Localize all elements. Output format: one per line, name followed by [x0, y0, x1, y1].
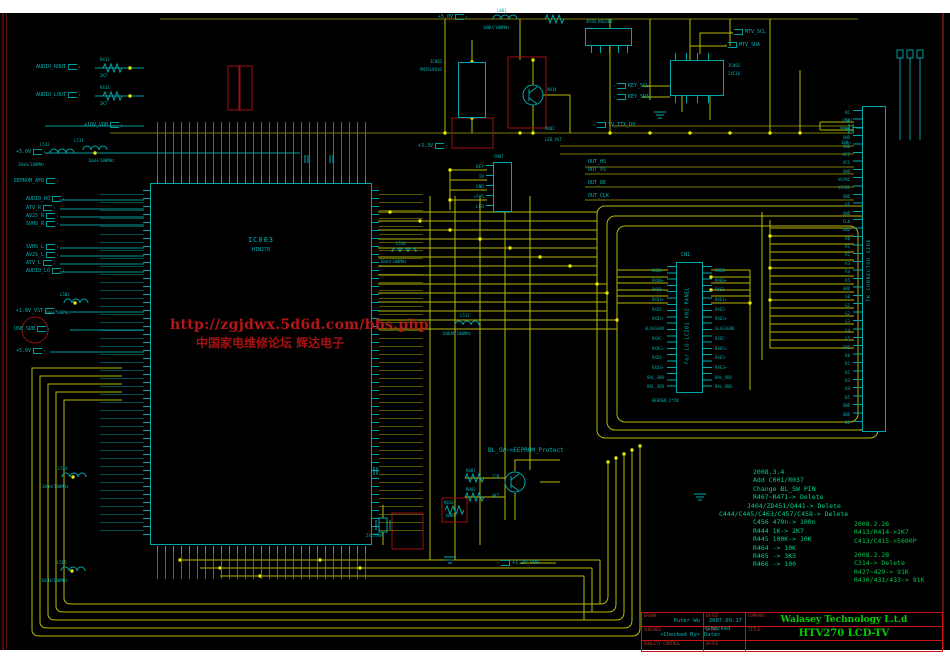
- net-label-out-hs: OUT_HS: [588, 160, 606, 165]
- lvds-pins-left: [667, 266, 676, 392]
- pin-label: RXO2+: [628, 315, 664, 325]
- net-label: +3.3V: [418, 144, 433, 149]
- pin-label: GND: [824, 344, 850, 352]
- revision-line: 2008.3.4: [753, 468, 848, 476]
- company-name: Walasey Technology L.t.d: [746, 613, 942, 626]
- pin-label: VCC: [824, 151, 850, 159]
- net-flag-eeprom-afd: EEPROM_AFD: [14, 178, 58, 184]
- net-flag-1v2-vdd: +1.2V_VDD: [498, 560, 539, 566]
- holder-label: 4PIN_HOLDER: [586, 20, 613, 24]
- pin-label: RXO3+: [628, 364, 664, 374]
- net-label: ATV_L: [26, 261, 41, 266]
- resistor-ref: R007: [466, 469, 476, 473]
- flag-icon: [46, 213, 58, 219]
- title-block-qc-cell: QUALITY CONTROL: [642, 641, 704, 651]
- transistor-part: 9014: [547, 88, 557, 92]
- inductor-value: 10uH/100MHz: [44, 311, 71, 315]
- net-flag-atv-l: ATV_L: [26, 260, 55, 266]
- inductor-ref: L001: [497, 9, 507, 13]
- pin-label: +5VS: [462, 194, 484, 204]
- main-ic-pins-left: [143, 190, 150, 538]
- flag-icon: [46, 221, 58, 227]
- pin-label: RXOC+: [628, 345, 664, 355]
- pin-label: RXE0-: [715, 267, 759, 277]
- pin-label: GND: [824, 193, 850, 201]
- pin-label: RXE2-: [715, 306, 759, 316]
- pin-label: RXE1+: [715, 296, 759, 306]
- holder-connector-body: [585, 28, 632, 46]
- keypad-header-ref: CN07: [494, 155, 504, 159]
- net-label-r002: R002: [545, 127, 555, 131]
- flag-icon: [46, 178, 58, 184]
- resistor-value: 100R: [445, 514, 455, 518]
- cell-label: CHECKED: [644, 628, 661, 632]
- pin-label: R2: [824, 251, 850, 259]
- flag-icon: [614, 83, 626, 89]
- pin-label: RXO0-: [628, 267, 664, 277]
- inductor-ref: L516: [58, 467, 68, 471]
- resistor-ref: R414: [100, 86, 110, 90]
- watermark-forum: 中国家电维修论坛 辉达电子: [196, 334, 344, 351]
- wires-left-of-ic: [100, 194, 144, 538]
- resistor-ref: R413: [100, 58, 110, 62]
- net-flag-svhs-l: SVHS_L: [26, 244, 58, 250]
- lvds-connector-ref: CN1: [681, 253, 690, 258]
- net-label: KEY_SCL: [628, 84, 649, 89]
- flag-icon: [33, 348, 45, 354]
- net-label-out-clk: OUT_CLK: [588, 194, 609, 199]
- flag-icon: [33, 149, 45, 155]
- lvds-pin-labels-right: RXE0-RXE0+RXE1-RXE1+RXE2-RXE2+GLASSGNDRX…: [715, 267, 759, 393]
- eeprom-part: 24C16: [728, 72, 740, 76]
- title-block-dated-cell: DATED 2007.09.17: [704, 613, 746, 627]
- pin-label: BAL_GND: [628, 374, 664, 384]
- net-flag-atv-r: ATV_R: [26, 205, 55, 211]
- net-label: ATV_R: [26, 206, 41, 211]
- pin-label: RXEC-: [715, 335, 759, 345]
- title-block-empty-cell: [746, 641, 942, 651]
- revision-line: C413/C415->5600P: [854, 537, 917, 545]
- pin-label: G5: [824, 335, 850, 343]
- inductor-value: 10uH/100MHz: [380, 260, 407, 264]
- pin-label: RXO1-: [628, 286, 664, 296]
- title-block-checked-date-cell: DATED <Checked Date>: [704, 627, 746, 641]
- lvds-connector-footprint: HEADER_2*20: [652, 399, 679, 403]
- revision-line: 2008.2.26: [854, 520, 917, 528]
- main-ic-pins-top: [157, 176, 369, 183]
- ttl-pin-labels: NCNCNCGNDGNDVCCVCCGNDHSYNCVSYNCGNDDEGNDC…: [824, 109, 850, 427]
- net-flag-audio-rout: AUDIO_ROUT: [36, 64, 80, 70]
- checked-by-value: <Checked By>: [660, 633, 700, 639]
- inductor-ref: L510: [396, 242, 406, 246]
- net-flag-5v-top: +5.0V: [438, 14, 467, 20]
- flag-icon: [68, 64, 80, 70]
- net-label: KEY_SDA: [628, 95, 649, 100]
- title-block-qc-date-cell: DATED: [704, 641, 746, 651]
- flag-icon: [52, 196, 64, 202]
- net-label-led-vst: LED_VST: [545, 138, 562, 142]
- pin-label: GLASSGND: [628, 325, 664, 335]
- flag-icon: [110, 122, 122, 128]
- net-label: AV2S_R: [26, 214, 44, 219]
- resistor-value: 2K7: [100, 74, 107, 78]
- pin-label: BAL_VDD: [715, 374, 759, 384]
- net-label: +1.8V_VST: [16, 309, 43, 314]
- revision-line: Add C001/R037: [753, 476, 848, 484]
- net-flag-key-scl: KEY_SCL: [614, 83, 649, 89]
- pin-label: RXO0+: [628, 277, 664, 287]
- net-label: AUDIO_LO: [26, 269, 50, 274]
- title-block-company-cell: COMPANY: Walasey Technology L.t.d: [746, 613, 942, 627]
- revision-line: 2008.2.28: [854, 551, 924, 559]
- drawn-by-value: Puter Wu: [674, 619, 701, 625]
- pin-label: DE: [824, 201, 850, 209]
- pin-label: RXE1-: [715, 286, 759, 296]
- revision-notes-2008-02-26: 2008.2.26R413/R414->2K7C413/C415->5600P: [854, 520, 917, 545]
- pin-label: GND: [824, 402, 850, 410]
- pin-label: G4: [824, 327, 850, 335]
- revision-line: R430/431/433-> 91K: [854, 576, 924, 584]
- title-block-title-cell: TITLE HTV270 LCD-TV: [746, 627, 942, 641]
- revision-line: R427~429-> 91K: [854, 568, 924, 576]
- net-label: MTV_SCL: [745, 30, 766, 35]
- schematic-page: IC003 HIN270 CN1 For LG LC201 V02 PANEL …: [0, 0, 950, 670]
- net-label: SVHS_R: [26, 222, 44, 227]
- net-flag-5v: +5.0V: [16, 149, 45, 155]
- pin-label: RXEC+: [715, 345, 759, 355]
- flag-icon: [43, 260, 55, 266]
- pin-label: R3: [824, 260, 850, 268]
- main-ic-part: HIN270: [150, 248, 372, 253]
- net-flag-usb-sdb: USB_SDB: [14, 326, 49, 332]
- net-flag-av2s-l: AV2S_L: [26, 252, 58, 258]
- pin-label: R5: [824, 277, 850, 285]
- flash-ic-body: [458, 62, 486, 118]
- schematic-title: HTV270 LCD-TV: [746, 627, 942, 640]
- resistor-ref: R002: [466, 488, 476, 492]
- net-label: +5.0V: [16, 349, 31, 354]
- net-flag-key-sda: KEY_SDA: [614, 94, 649, 100]
- pin-label: RXE3-: [715, 354, 759, 364]
- flag-icon: [498, 560, 510, 566]
- revision-notes-2008-02-28: 2008.2.28C314-> DeleteR427~429-> 91KR430…: [854, 551, 924, 585]
- pin-label: B2: [824, 369, 850, 377]
- title-block-checked-cell: CHECKED <Checked By>: [642, 627, 704, 641]
- main-ic-pins-right: [372, 190, 379, 538]
- net-flag-10v-vdb: +10V_VDB: [84, 122, 122, 128]
- net-label: AV2S_L: [26, 253, 44, 258]
- pin-label: B3: [824, 377, 850, 385]
- net-flag-audio-lout: AUDIO_LOUT: [36, 92, 80, 98]
- net-flag-mtv-scl: MTV_SCL: [731, 29, 766, 35]
- main-ic-ref: IC003: [150, 237, 372, 244]
- net-flag-ttx: TV_TTX_DV: [594, 122, 635, 128]
- flag-icon: [455, 14, 467, 20]
- watermark-url: http://zgjdwx.5d6d.com/bbs.php: [170, 317, 429, 333]
- pin-label: GND: [462, 184, 484, 194]
- net-flag-3v3: +3.3V: [418, 143, 447, 149]
- flag-icon: [37, 326, 49, 332]
- pin-label: NC: [824, 126, 850, 134]
- resistor-value: 4K7: [492, 494, 499, 498]
- pin-label: B1: [824, 360, 850, 368]
- net-label: +1.2V_VDD: [512, 561, 539, 566]
- cell-label: DRAWN: [644, 614, 656, 618]
- title-block: DRAWN Puter Wu DATED 2007.09.17 COMPANY:…: [641, 612, 943, 652]
- pin-label: NC: [824, 109, 850, 117]
- net-label: USB_SDB: [14, 327, 35, 332]
- pin-label: LED: [462, 204, 484, 214]
- pin-label: B4: [824, 385, 850, 393]
- eeprom-pins-top: [675, 53, 719, 60]
- inductor-value: 10uH/100MHz: [88, 159, 115, 163]
- net-label: TV_TTX_DV: [608, 123, 635, 128]
- revision-line: R467~R471-> Delete: [753, 493, 848, 501]
- inductor-value: 10uH/100MHz: [41, 579, 68, 583]
- pin-label: RXE2+: [715, 315, 759, 325]
- flag-icon: [731, 29, 743, 35]
- net-flag-5v-2: +5.0V: [16, 348, 45, 354]
- inductor-value: 100UH/100MHz: [442, 332, 471, 336]
- net-label: SVHS_L: [26, 245, 44, 250]
- revision-line: R464 -> 10K: [753, 544, 848, 552]
- net-label: AUDIO_ROUT: [36, 65, 66, 70]
- revision-line: Change BL_SW PIN: [753, 485, 848, 493]
- wire-drops-below-ic: [157, 553, 369, 579]
- keypad-pin-labels: KEYIRGND+5VSLED: [462, 164, 484, 214]
- pin-label: G0: [824, 293, 850, 301]
- pin-label: G3: [824, 318, 850, 326]
- lvds-pins-right: [703, 266, 712, 392]
- net-flag-audio-ro: AUDIO_RO: [26, 196, 64, 202]
- checked-date-value: <Checked Date>: [704, 627, 742, 638]
- flag-icon: [725, 42, 737, 48]
- pin-label: BAL_GND: [715, 383, 759, 393]
- pin-label: G2: [824, 310, 850, 318]
- net-label: AUDIO_LOUT: [36, 93, 66, 98]
- pin-label: VSYNC: [824, 184, 850, 192]
- pin-label: GND: [824, 411, 850, 419]
- revision-notes-main: 2008.3.4Add C001/R037Change BL_SW PINR46…: [719, 468, 848, 569]
- ttl-pins: [853, 110, 862, 428]
- revision-line: C314-> Delete: [854, 559, 924, 567]
- flag-icon: [52, 268, 64, 274]
- wire-drops-above-ic: [157, 122, 369, 176]
- pin-label: BAL_VDD: [628, 383, 664, 393]
- net-flag-svhs-r: SVHS_R: [26, 221, 58, 227]
- cap-value: 100n: [841, 141, 851, 145]
- eeprom-ref: IC001: [728, 64, 740, 68]
- inductor-ref: L513: [460, 314, 470, 318]
- inductor-value: 10uH/100MHz: [18, 163, 45, 167]
- ttl-connector-label: TK_CONNECTOR_SIDE: [868, 210, 876, 330]
- cell-label: DATED: [706, 642, 718, 646]
- pin-label: HSYNC: [824, 176, 850, 184]
- inductor-ref: L502: [60, 293, 70, 297]
- keypad-pins: [486, 165, 493, 211]
- net-flag-audio-lo: AUDIO_LO: [26, 268, 64, 274]
- net-label: +5.0V: [438, 15, 453, 20]
- eeprom-pins-bottom: [675, 96, 719, 103]
- resistor-value: 22R: [492, 475, 499, 479]
- flag-icon: [43, 205, 55, 211]
- net-label: +5.0V: [16, 150, 31, 155]
- pin-label: GND: [824, 168, 850, 176]
- flag-icon: [46, 244, 58, 250]
- net-label: +10V_VDB: [84, 123, 108, 128]
- crystal-value: 24.576M: [366, 534, 383, 538]
- net-label-out-de: OUT_DE: [588, 181, 606, 186]
- drawn-date-value: 2007.09.17: [709, 619, 742, 625]
- inductor-ref: L512: [40, 143, 50, 147]
- net-flag-mtv-sda: MTV_SDA: [725, 42, 760, 48]
- revision-line: R444 1K-> 2K7: [753, 527, 848, 535]
- resistor-value: 2K7: [100, 102, 107, 106]
- pin-label: GND: [824, 226, 850, 234]
- keypad-header-body: [493, 162, 512, 212]
- pin-label: KEY: [462, 164, 484, 174]
- revision-line: R466 -> 100: [753, 560, 848, 568]
- pin-label: CLK: [824, 218, 850, 226]
- holder-pins: [591, 46, 629, 53]
- revision-line: C444/C445/C463/C457/C458-> Delete: [719, 510, 848, 518]
- pin-label: R0: [824, 235, 850, 243]
- pin-label: GND: [824, 210, 850, 218]
- flag-icon: [46, 252, 58, 258]
- title-block-drawn-cell: DRAWN Puter Wu: [642, 613, 704, 627]
- revision-line: J404/ZD451/Q441-> Delete: [747, 502, 848, 510]
- pin-label: GLASSGND: [715, 325, 759, 335]
- note-bl-sw: BL_SW~>EEPROM_Protect: [488, 448, 564, 454]
- net-label: AUDIO_RO: [26, 197, 50, 202]
- revision-line: R413/R414->2K7: [854, 528, 917, 536]
- resistor-ref: R016: [444, 501, 454, 505]
- flag-icon: [594, 122, 606, 128]
- pin-label: RXO1+: [628, 296, 664, 306]
- net-label: MTV_SDA: [739, 43, 760, 48]
- pin-label: R1: [824, 243, 850, 251]
- net-flag-av2s-r: AV2S_R: [26, 213, 58, 219]
- flash-part: PM25LV010: [420, 68, 442, 72]
- pin-label: RXE3+: [715, 364, 759, 374]
- pin-label: RXO3-: [628, 354, 664, 364]
- eeprom-ic-body: [670, 60, 724, 96]
- cap-ref: C501: [843, 119, 853, 123]
- revision-line: R445 100K-> 10K: [753, 535, 848, 543]
- cell-label: QUALITY CONTROL: [644, 642, 680, 646]
- pin-label: RXOC-: [628, 335, 664, 345]
- flag-icon: [68, 92, 80, 98]
- revision-line: C456 470n-> 100n: [753, 518, 848, 526]
- lvds-connector-label: For LG LC201 V02 PANEL: [686, 264, 695, 388]
- net-label-out-vs: OUT_VS: [588, 168, 606, 173]
- flash-ref: IC002: [430, 60, 442, 64]
- pin-label: RXE0+: [715, 277, 759, 287]
- pin-label: R4: [824, 268, 850, 276]
- main-ic-pins-bottom: [157, 546, 369, 553]
- flag-icon: [435, 143, 447, 149]
- net-label: EEPROM_AFD: [14, 179, 44, 184]
- pin-label: VCC: [824, 159, 850, 167]
- revision-line: R465 -> 3K3: [753, 552, 848, 560]
- pin-label: GND: [824, 285, 850, 293]
- inductor-ref: L505: [57, 561, 67, 565]
- pin-label: G1: [824, 302, 850, 310]
- flag-icon: [614, 94, 626, 100]
- inductor-value: 10uH/100MHz: [42, 485, 69, 489]
- pin-label: IR: [462, 174, 484, 184]
- pin-label: B5: [824, 394, 850, 402]
- inductor-value: 100U/100MHz: [483, 26, 510, 30]
- pin-label: NC: [824, 419, 850, 427]
- lvds-pin-labels-left: RXO0-RXO0+RXO1-RXO1+RXO2-RXO2+GLASSGNDRX…: [628, 267, 664, 393]
- pin-label: RXO2-: [628, 306, 664, 316]
- pin-label: B0: [824, 352, 850, 360]
- inductor-ref: L511: [74, 139, 84, 143]
